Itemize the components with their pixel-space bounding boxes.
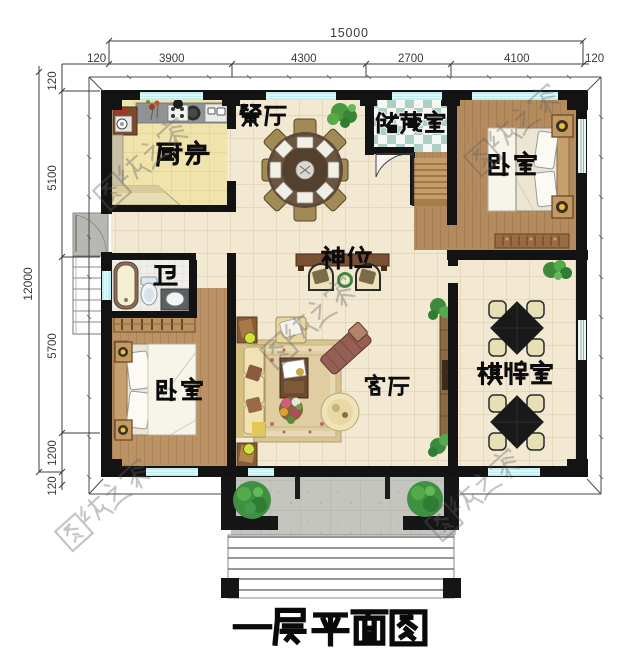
svg-text:5700: 5700	[47, 333, 59, 359]
svg-text:5100: 5100	[47, 165, 59, 191]
svg-text:15000: 15000	[330, 26, 368, 40]
svg-text:120: 120	[47, 476, 59, 495]
svg-text:120: 120	[87, 53, 106, 65]
svg-text:4100: 4100	[504, 53, 530, 65]
svg-text:4300: 4300	[291, 53, 317, 65]
svg-text:2700: 2700	[398, 53, 424, 65]
svg-text:3900: 3900	[159, 53, 185, 65]
svg-text:1200: 1200	[47, 440, 59, 466]
svg-text:120: 120	[47, 71, 59, 90]
svg-text:12000: 12000	[21, 267, 35, 301]
svg-text:120: 120	[585, 53, 604, 65]
